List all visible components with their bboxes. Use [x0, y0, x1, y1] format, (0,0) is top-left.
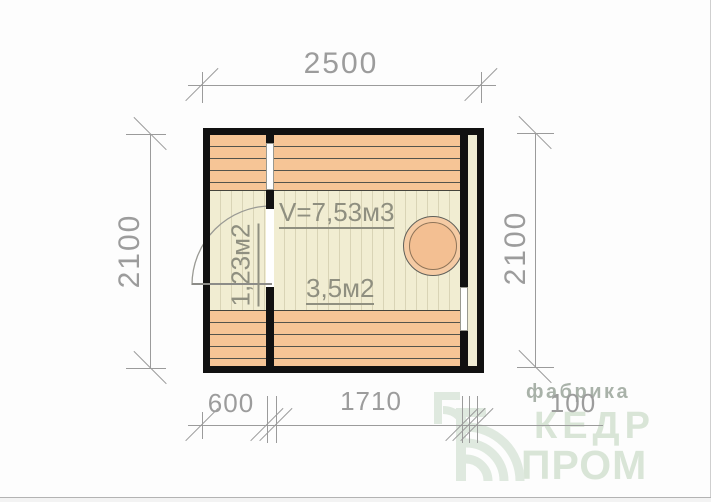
main-area-label: 3,5м2 — [306, 275, 374, 305]
dim-ext-top-left — [202, 72, 203, 103]
floor-plan-drawing: фабрика КЕДР ПРОМ V=7,53м3 3,5м2 — [0, 0, 711, 502]
door-opening — [266, 209, 274, 287]
page-bottom-edge — [0, 497, 711, 502]
dim-top-value: 2500 — [266, 49, 416, 79]
bench-top-left — [210, 135, 266, 191]
dim-ext — [202, 412, 203, 439]
wall-right-outer — [477, 128, 484, 373]
dim-line-bottom — [188, 425, 603, 426]
bench-bottom-left — [210, 310, 266, 366]
entry-area-label: 1,23м2 — [226, 218, 256, 313]
dim-line-right — [535, 133, 536, 367]
dim-ext-top-right — [481, 72, 482, 103]
dim-right-value: 2100 — [501, 202, 531, 294]
dim-bottom-mid-value: 1710 — [306, 388, 436, 414]
wall-top — [203, 128, 484, 135]
right-wall-window — [460, 287, 468, 331]
dim-left-value: 2100 — [115, 205, 145, 297]
bench-top-right — [274, 135, 460, 191]
partition-window — [266, 143, 274, 190]
dim-line-left — [150, 134, 151, 368]
wall-bottom — [203, 366, 484, 373]
dim-bottom-left-value: 600 — [181, 390, 281, 416]
dim-line-top — [188, 85, 496, 86]
dim-ext — [477, 396, 478, 443]
volume-label: V=7,53м3 — [279, 199, 394, 229]
wall-right-inner — [460, 135, 468, 366]
wall-left — [203, 128, 210, 373]
right-wall-cavity — [468, 135, 477, 366]
dim-ext-left-top — [126, 134, 166, 135]
bench-bottom-right — [274, 310, 460, 366]
dim-ext — [469, 396, 470, 443]
dim-ext-left-bottom — [126, 368, 166, 369]
dim-bottom-right-value: 100 — [523, 390, 623, 416]
